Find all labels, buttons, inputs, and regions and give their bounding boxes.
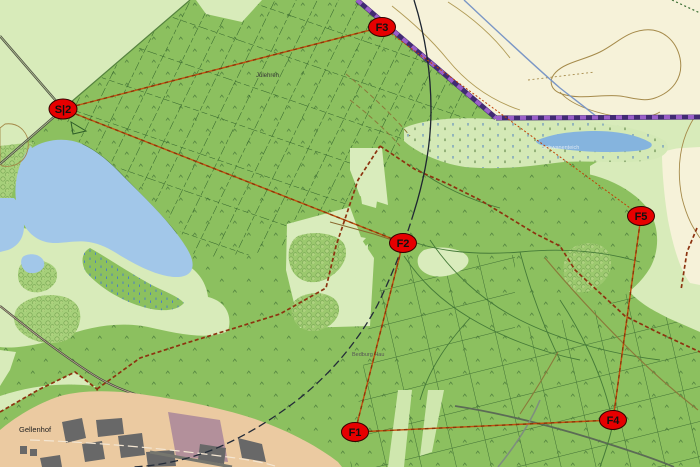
svg-text:Jülehren: Jülehren bbox=[256, 73, 279, 79]
svg-text:F1: F1 bbox=[349, 427, 362, 439]
svg-text:S|2: S|2 bbox=[55, 104, 72, 116]
svg-text:F5: F5 bbox=[635, 211, 648, 223]
svg-text:F4: F4 bbox=[607, 415, 621, 427]
svg-text:F3: F3 bbox=[376, 22, 389, 34]
svg-text:Bedburg Hau: Bedburg Hau bbox=[352, 352, 384, 358]
svg-text:Gellenhof: Gellenhof bbox=[19, 425, 52, 434]
svg-text:F2: F2 bbox=[397, 238, 410, 250]
